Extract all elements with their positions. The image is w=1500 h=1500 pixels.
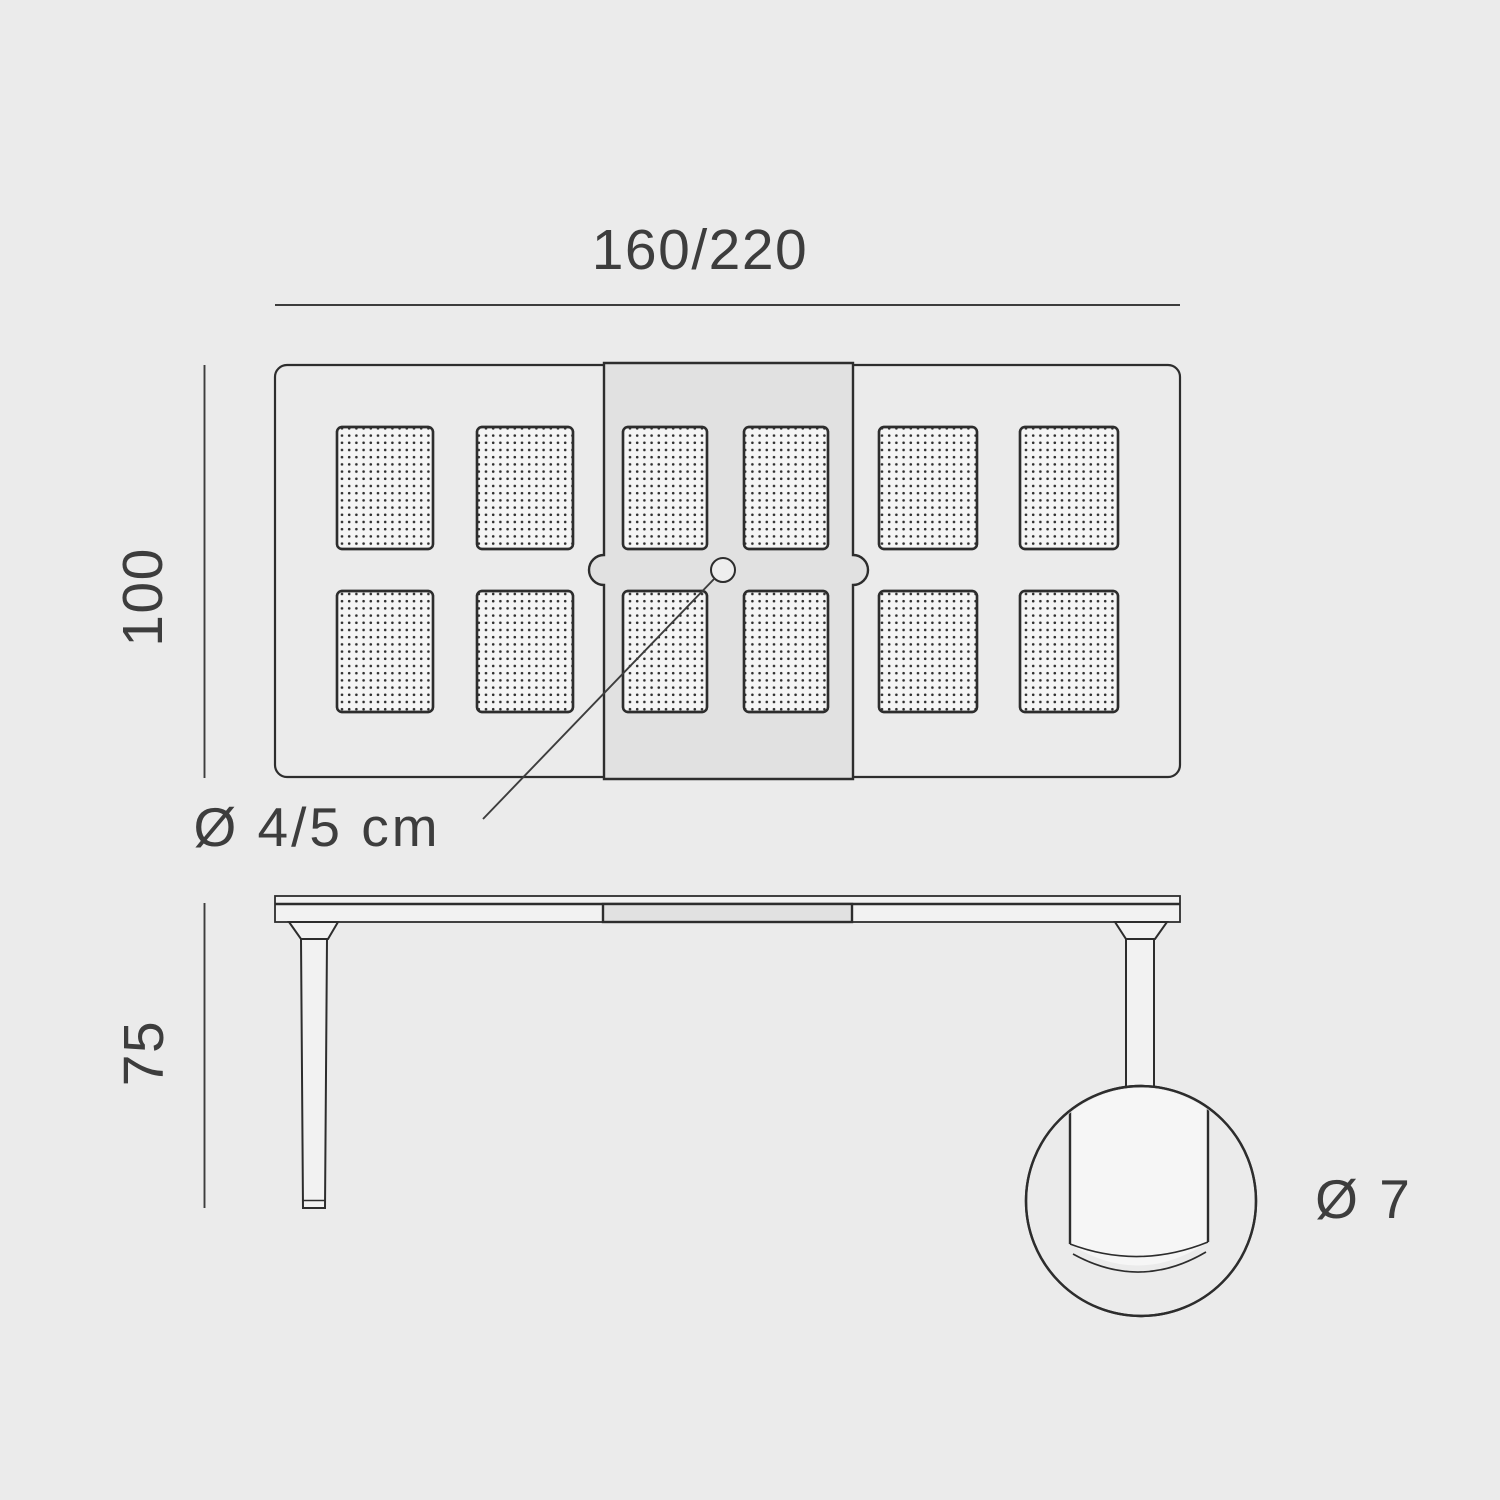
panel-dot-grid [623,427,707,549]
height-dimension-label: 75 [112,1020,176,1086]
panel-dot-grid [477,427,573,549]
panel-dot-grid [879,591,977,712]
right-leg-cap [1115,922,1167,939]
panel-dot-grid [1020,591,1118,712]
panel-dot-grid [623,591,707,712]
technical-drawing-canvas: 160/220 100 [0,0,1500,1500]
width-dimension: 160/220 [275,218,1180,305]
panel-dot-grid [337,427,433,549]
left-leg-cap [289,922,338,939]
width-dimension-label: 160/220 [592,218,809,282]
umbrella-hole-label: Ø 4/5 cm [193,796,440,858]
panel-dot-grid [879,427,977,549]
panel-dot-grid [337,591,433,712]
panel-dot-grid [1020,427,1118,549]
panel-dot-grid [477,591,573,712]
extendable-table-drawing: 160/220 100 [0,0,1500,1500]
panel-dot-grid [744,427,828,549]
plan-view: 160/220 100 [111,218,1180,858]
leg-diameter-label: Ø 7 [1315,1168,1413,1230]
left-leg [289,922,338,1208]
height-dimension: 75 [112,903,205,1208]
side-view: 75 Ø 7 [112,896,1413,1316]
depth-dimension: 100 [111,365,205,778]
right-leg [1115,922,1167,1099]
panel-dot-grid [744,591,828,712]
left-leg-column [301,939,327,1208]
depth-dimension-label: 100 [111,547,175,647]
extension-leaf-side [603,904,852,922]
umbrella-hole [711,558,735,582]
magnified-leg [1070,1086,1208,1272]
magnified-leg-body [1070,1086,1208,1266]
right-leg-column [1126,939,1154,1099]
leg-detail: Ø 7 [1026,1086,1413,1316]
